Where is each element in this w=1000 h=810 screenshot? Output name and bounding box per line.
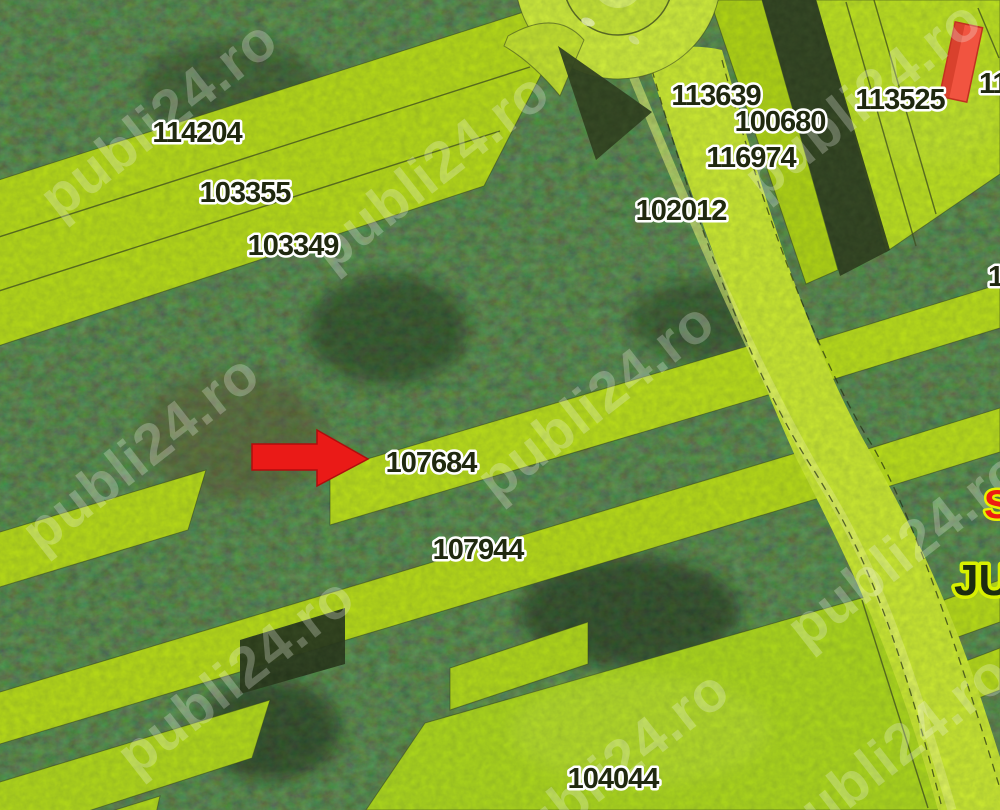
- parcel-label-highlighted: 107684: [386, 447, 478, 479]
- cadastral-map: publi24.ro publi24.ro publi24.ro publi24…: [0, 0, 1000, 810]
- parcel-label: 113525: [855, 84, 945, 116]
- parcel-label: 103349: [248, 230, 340, 262]
- parcel-label-partial: 1: [988, 261, 1000, 293]
- place-name-label-partial: JU: [954, 556, 1000, 605]
- parcel-label: 104044: [568, 763, 660, 795]
- parcel-label: 103355: [200, 177, 292, 209]
- parcel-label-partial: 11: [979, 68, 1000, 100]
- parcel-label: 107944: [433, 534, 525, 566]
- parcel-label: 102012: [636, 195, 727, 227]
- map-viewport[interactable]: publi24.ro publi24.ro publi24.ro publi24…: [0, 0, 1000, 810]
- road-code-label-partial: S: [984, 483, 1000, 527]
- parcel-label: 116974: [706, 142, 796, 174]
- parcel-label: 100680: [735, 106, 826, 138]
- parcel-label: 114204: [152, 117, 242, 149]
